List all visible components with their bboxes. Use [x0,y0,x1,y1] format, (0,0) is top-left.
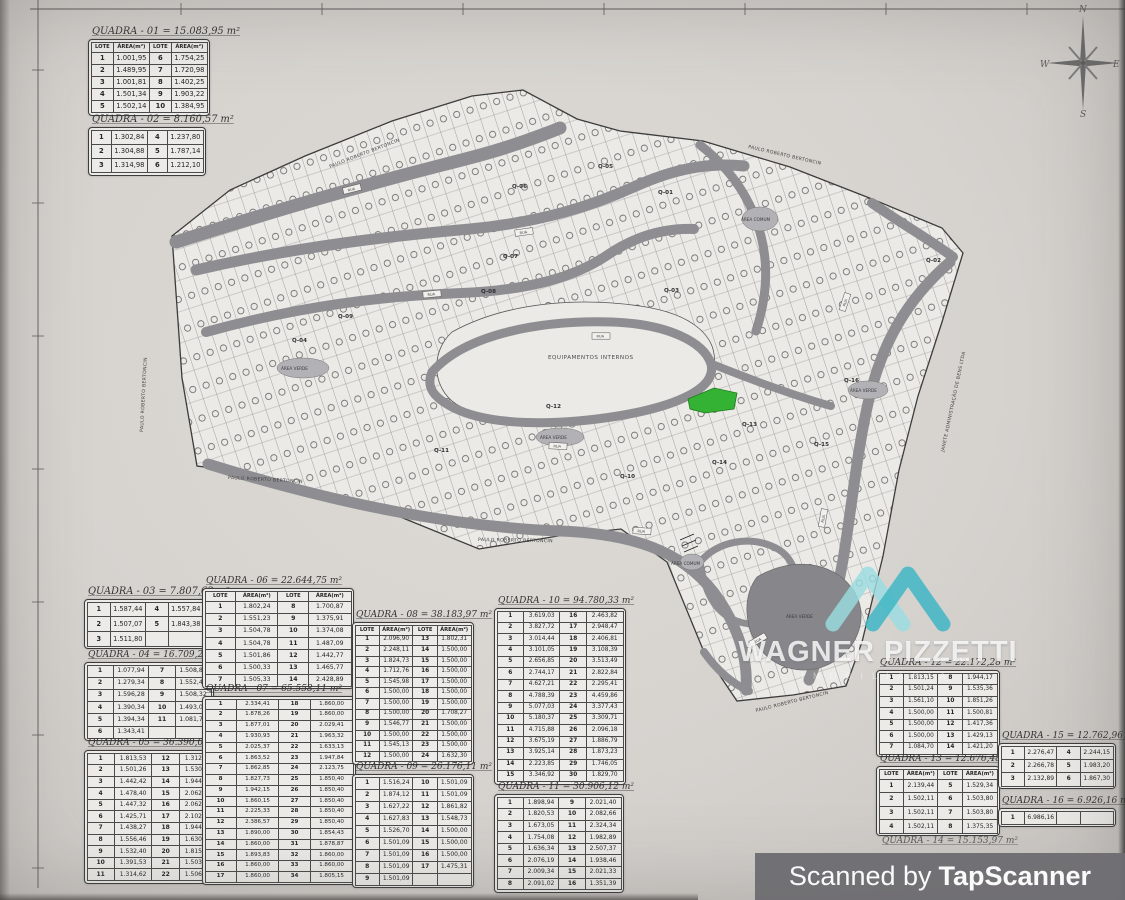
lote-cell: 15 [413,656,437,667]
lote-cell: 19 [413,698,437,709]
lote-cell: 8 [205,774,236,785]
lote-cell: 1 [87,665,113,677]
quadra-block-label: Q-03 [664,288,679,294]
lote-cell: 27 [279,796,310,807]
lote-cell: 15 [205,850,236,861]
lote-cell: 17 [413,677,437,688]
lote-cell: 21 [279,731,310,742]
table-row: 71.438,27181.944,24 [87,823,217,835]
table-row: 41.712,76161.500,00 [355,667,471,678]
area-cell: 1.391,53 [114,857,152,869]
area-cell: 1.851,26 [963,696,997,708]
table-row: 41.478,40152.062,45 [87,788,217,800]
area-cell: 1.860,00 [310,861,353,872]
area-cell: 1.084,70 [904,742,938,754]
quadra-14-title: QUADRA - 14 = 15.153,97 m² [882,836,1002,846]
table-row: 62.744,17212.822,84 [497,668,623,679]
table-row: 91.501,09 [355,873,471,885]
table-row: 12.139,4451.529,34 [879,779,997,793]
table-row: 12.276,4742.244,15 [1001,746,1113,759]
lote-cell: 2 [879,793,904,807]
area-cell: 1.802,31 [437,635,471,646]
area-cell: 1.854,43 [310,828,353,839]
lote-cell: 16 [205,861,236,872]
quadra-07-table: 12.334,41181.860,0021.878,26191.860,0031… [202,696,356,885]
lote-cell: 29 [279,818,310,829]
lote-cell: 23 [279,753,310,764]
lote-cell: 3 [87,776,114,788]
area-cell: 1.500,00 [437,677,471,688]
quadra-09-title: QUADRA - 09 = 26.176,11 m² [356,762,474,772]
lote-cell: 4 [205,731,236,742]
table-row: 61.425,71172.102,00 [87,811,217,823]
lote-cell: 10 [497,714,523,725]
table-row: 105.180,37253.309,71 [497,714,623,725]
lote-cell: 11 [205,807,236,818]
table-row: 21.489,9571.720,98 [91,64,207,76]
column-header: ÁREA(m²) [236,591,278,601]
area-cell: 2.082,66 [585,809,621,821]
area-cell: 2.276,47 [1025,746,1057,759]
area-cell: 2.406,81 [586,634,623,645]
lote-cell: 4 [145,602,169,617]
area-cell: 1.500,00 [437,656,471,667]
area-cell: 1.447,32 [114,799,152,811]
lote-cell: 2 [205,613,236,625]
table-row: 61.500,33131.465,77 [205,662,351,674]
area-cell: 1.501,09 [437,777,471,789]
table-row: 81.827,73251.850,40 [205,774,353,785]
table-row: 72.009,34152.021,33 [497,867,621,879]
area-cell: 1.824,73 [379,656,413,667]
area-cell: 3.675,19 [523,736,560,747]
lote-cell: 28 [560,748,586,759]
area-cell: 1.501,09 [379,849,413,861]
lote-cell: 4 [87,702,113,714]
area-cell: 1.500,00 [379,709,413,720]
lote-cell: 8 [497,691,523,702]
area-cell: 1.982,89 [585,832,621,844]
lote-cell: 8 [497,878,523,890]
quadra-10-table: 13.619,03162.463,8223.827,72172.948,4733… [494,608,626,785]
table-row: 101.391,53211.503,18 [87,857,217,869]
area-cell: 1.500,00 [437,825,471,837]
lote-cell: 7 [205,764,236,775]
column-header: ÁREA(m²) [963,769,997,779]
quadra-block-label: Q-04 [292,338,307,344]
lote-cell: 2 [87,617,111,632]
table-row: 61.500,00181.500,00 [355,688,471,699]
lote-cell: 6 [938,793,963,807]
lote-cell: 3 [497,634,523,645]
area-cell: 1.526,70 [379,825,413,837]
lote-cell: 20 [279,721,310,732]
area-cell: 2.744,17 [523,668,560,679]
table-row: 51.394,34111.081,75 [87,714,211,726]
table-row: 41.500,00111.500,81 [879,708,997,720]
table-row: 11.802,2481.700,87 [205,601,351,613]
table-row: 31.877,01202.029,41 [205,721,353,732]
table-row: 11.587,4441.557,84 [87,602,203,617]
area-cell: 1.500,00 [379,698,413,709]
area-cell: 1.478,40 [114,788,152,800]
area-cell: 1.627,83 [379,813,413,825]
area-cell: 1.850,40 [310,796,353,807]
lote-cell: 4 [355,667,379,678]
table-row: 11.001,9561.754,25 [91,52,207,64]
lote-cell: 8 [87,834,114,846]
lote-cell: 1 [1001,811,1025,824]
table-row: 31.511,80 [87,632,203,647]
area-cell: 4.788,39 [523,691,560,702]
area-cell: 1.633,13 [310,742,353,753]
table-row: 11.516,24101.501,09 [355,777,471,789]
lote-cell: 6 [87,726,113,738]
lote-cell [413,873,437,885]
area-cell: 2.021,40 [585,797,621,809]
area-cell: 1.511,80 [111,632,145,647]
area-cell: 1.860,00 [236,872,279,883]
lote-cell: 30 [560,770,586,781]
lote-cell: 11 [149,714,175,726]
area-cell: 1.820,53 [523,809,559,821]
lote-cell: 3 [879,806,904,820]
table-row: 12.334,41181.860,00 [205,699,353,710]
table-row: 31.442,42141.944,02 [87,776,217,788]
area-cell: 1.212,10 [168,158,203,172]
lote-cell: 11 [559,820,585,832]
quadra-04-block: QUADRA - 04 = 16.709,25 m²11.077,9471.50… [84,650,214,741]
area-cell: 1.501,09 [379,873,413,885]
table-row: 23.827,72172.948,47 [497,622,623,633]
lote-cell: 3 [205,625,236,637]
area-cell: 2.009,34 [523,867,559,879]
lote-cell: 1 [355,777,379,789]
quadra-block-label: Q-15 [814,442,829,448]
area-cell: 1.829,70 [586,770,623,781]
lote-cell: 1 [205,601,236,613]
area-label: ÁREA COMUM [671,561,701,566]
table-row: 31.001,8181.402,25 [91,76,207,88]
area-cell: 1.860,00 [236,861,279,872]
area-cell: 2.132,89 [1025,773,1057,786]
area-label: ÁREA VERDE [850,388,877,393]
area-cell: 1.500,00 [437,837,471,849]
quadra-13-title: QUADRA - 13 = 12.676,48 m² [880,754,1000,764]
quadra-13-table: LOTEÁREA(m²)LOTEÁREA(m²)12.139,4451.529,… [876,766,1000,836]
lote-cell: 9 [149,89,172,101]
lote-cell: 1 [1001,746,1025,759]
quadra-block-label: Q-06 [512,184,527,190]
table-row: 81.500,00201.708,27 [355,709,471,720]
table-row: 131.890,00301.854,43 [205,828,353,839]
lote-cell: 6 [205,753,236,764]
compass-west-label: W [1040,60,1050,70]
lote-cell: 4 [91,89,114,101]
area-cell: 2.223,85 [523,759,560,770]
lote-cell: 12 [152,753,179,765]
svg-text:RUA: RUA [637,529,645,534]
quadra-15-table: 12.276,4742.244,1522.266,7851.983,2032.1… [998,743,1116,789]
area-cell: 3.101,05 [523,645,560,656]
area-cell: 1.394,34 [113,714,149,726]
area-cell: 1.500,00 [437,849,471,861]
area-cell: 1.596,28 [113,689,149,701]
area-cell: 1.942,15 [236,785,279,796]
table-row: 171.860,00341.805,15 [205,872,353,883]
quadra-16-block: QUADRA - 16 = 6.926,16 m²16.986,16 [998,796,1116,827]
table-row: 112.225,33281.850,40 [205,807,353,818]
area-cell: 1.425,71 [114,811,152,823]
table-header-row: LOTEÁREA(m²)LOTEÁREA(m²) [205,591,351,601]
area-cell: 1.500,33 [236,662,278,674]
area-cell: 1.279,34 [113,677,149,689]
area-cell: 1.314,62 [114,869,152,881]
lote-cell: 13 [278,662,309,674]
table-row: 71.862,85242.123,75 [205,764,353,775]
lote-cell: 8 [149,677,175,689]
area-cell: 1.500,00 [904,731,938,743]
area-cell: 3.377,43 [586,702,623,713]
column-header: LOTE [91,42,114,52]
table-row: 21.304,8851.787,14 [91,144,203,158]
lote-cell: 11 [278,638,309,650]
area-cell: 1.850,40 [310,774,353,785]
area-cell: 1.417,36 [963,719,997,731]
area-cell: 1.720,98 [172,64,207,76]
area-cell: 1.545,98 [379,677,413,688]
area-label: ÁREA VERDE [540,435,567,440]
lote-cell: 11 [87,869,114,881]
area-cell: 1.886,79 [586,736,623,747]
table-row: 114.715,88262.096,18 [497,725,623,736]
table-row: 61.343,41 [87,726,211,738]
lote-cell: 13 [205,828,236,839]
area-cell: 1.503,80 [963,806,997,820]
area-cell: 1.500,00 [437,698,471,709]
lote-cell: 4 [497,832,523,844]
column-header: ÁREA(m²) [379,625,413,635]
area-cell: 1.500,00 [437,646,471,657]
area-cell: 2.656,85 [523,657,560,668]
table-header-row: LOTEÁREA(m²)LOTEÁREA(m²) [91,42,207,52]
lote-cell: 10 [149,101,172,113]
lote-cell: 13 [152,765,179,777]
area-cell: 1.877,01 [236,721,279,732]
quadra-15-block: QUADRA - 15 = 12.762,96 m²12.276,4742.24… [998,731,1116,789]
area-cell: 2.021,33 [585,867,621,879]
quadra-01-table: LOTEÁREA(m²)LOTEÁREA(m²)11.001,9561.754,… [88,39,210,116]
area-cell: 1.500,00 [379,730,413,741]
lote-cell: 12 [497,736,523,747]
area-cell: 2.948,47 [586,622,623,633]
lote-cell: 10 [205,796,236,807]
lote-cell: 20 [152,846,179,858]
table-row: 31.824,73151.500,00 [355,656,471,667]
table-row: 41.390,34101.493,08 [87,702,211,714]
column-header: ÁREA(m²) [437,625,471,635]
table-row: 91.532,40201.815,44 [87,846,217,858]
area-cell: 4.627,21 [523,679,560,690]
area-cell [1081,811,1114,824]
area-cell: 1.754,08 [523,832,559,844]
lote-cell: 4 [87,788,114,800]
area-cell: 1.673,05 [523,820,559,832]
table-header-row: LOTEÁREA(m²)LOTEÁREA(m²) [879,769,997,779]
lote-cell: 17 [560,622,586,633]
area-cell: 1.500,00 [437,667,471,678]
area-cell: 1.878,26 [236,710,279,721]
table-row: 133.925,14281.873,23 [497,748,623,759]
table-row: 141.860,00311.878,87 [205,839,353,850]
lote-cell: 6 [87,811,114,823]
area-label: ÁREA COMUM [741,217,771,222]
table-row: 52.656,85203.513,49 [497,657,623,668]
lote-cell: 5 [205,742,236,753]
area-cell: 1.442,42 [114,776,152,788]
quadra-block-label: Q-05 [598,164,613,170]
quadra-08-table: LOTEÁREA(m²)LOTEÁREA(m²)12.096,90131.802… [352,622,474,765]
lote-cell: 9 [938,685,963,697]
lote-cell: 3 [87,632,111,647]
area-cell: 1.001,81 [114,76,149,88]
area-cell: 1.700,87 [309,601,351,613]
area-cell: 2.822,84 [586,668,623,679]
compass-north-label: N [1078,5,1088,15]
table-row: 31.504,78101.374,08 [205,625,351,637]
table-row: 22.248,11141.500,00 [355,646,471,657]
lote-cell: 7 [355,698,379,709]
lote-cell: 2 [497,622,523,633]
area-cell: 1.546,77 [379,720,413,731]
lote-cell: 11 [938,708,963,720]
lote-cell: 7 [497,867,523,879]
table-row: 51.501,86121.442,77 [205,650,351,662]
lote-cell: 2 [497,809,523,821]
compass-south-label: S [1080,110,1086,120]
table-row: 33.014,44182.406,81 [497,634,623,645]
lote-cell: 5 [355,825,379,837]
area-cell: 5.077,03 [523,702,560,713]
table-row: 31.596,2891.508,32 [87,689,211,701]
area-cell: 1.077,94 [113,665,149,677]
area-cell: 1.860,00 [236,839,279,850]
lote-cell: 3 [91,158,112,172]
area-cell: 1.402,25 [172,76,207,88]
quadra-04-table: 11.077,9471.508,8421.279,3481.552,4131.5… [84,662,214,741]
area-cell: 1.802,24 [236,601,278,613]
area-cell: 1.551,23 [236,613,278,625]
lote-cell: 33 [279,861,310,872]
lote-cell: 3 [355,656,379,667]
quadra-12-title: QUADRA - 12 = 22.172,28 m² [880,658,1000,668]
compass-east-label: E [1112,60,1120,70]
quadra-block-label: Q-07 [503,254,518,260]
table-row: 71.500,00191.500,00 [355,698,471,709]
area-cell: 1.632,30 [437,751,471,762]
lote-cell: 13 [938,731,963,743]
lote-cell: 8 [938,673,963,685]
quadra-03-block: QUADRA - 03 = 7.807,63 m²11.587,4441.557… [84,586,206,649]
table-row: 91.546,77211.500,00 [355,720,471,731]
table-row: 21.279,3481.552,41 [87,677,211,689]
table-row: 91.942,15261.850,40 [205,785,353,796]
lote-cell: 6 [497,855,523,867]
area-cell: 1.343,41 [113,726,149,738]
quadra-03-table: 11.587,4441.557,8421.507,0751.843,3831.5… [84,599,206,649]
quadra-08-block: QUADRA - 08 = 38.183,97 m²LOTEÁREA(m²)LO… [352,610,474,765]
area-cell: 1.529,34 [963,779,997,793]
compass-rose-icon: N S W E [1040,5,1120,120]
scanned-by-bar: Scanned by TapScanner [755,853,1125,900]
lote-cell: 12 [413,801,437,813]
column-header: ÁREA(m²) [904,769,938,779]
lote-cell: 23 [560,691,586,702]
lote-cell: 2 [87,765,114,777]
lote-cell: 2 [1001,759,1025,772]
area-cell: 1.465,77 [309,662,351,674]
area-cell: 2.076,19 [523,855,559,867]
lote-cell: 14 [413,646,437,657]
area-cell: 2.463,82 [586,611,623,622]
table-row: 32.132,8961.867,30 [1001,773,1113,786]
quadra-block-label: Q-09 [338,314,353,320]
road-name-box: RUA [592,333,610,339]
lote-cell: 30 [279,828,310,839]
area-cell: 1.501,34 [114,89,149,101]
scanned-sheet: EQUIPAMENTOS INTERNOS PAULO ROBERTO BERT… [0,0,1125,900]
lote-cell: 1 [205,699,236,710]
table-row: 11.302,8441.237,80 [91,130,203,144]
area-cell: 1.302,84 [112,130,147,144]
table-row: 22.266,7851.983,20 [1001,759,1113,772]
quadra-06-block: QUADRA - 06 = 22.644,75 m²LOTEÁREA(m²)LO… [202,576,354,689]
lote-cell: 5 [938,779,963,793]
area-cell: 1.860,00 [310,850,353,861]
area-cell: 1.712,76 [379,667,413,678]
lote-cell: 15 [559,867,585,879]
area-cell: 2.334,41 [236,699,279,710]
table-row: 82.091,02161.351,39 [497,878,621,890]
area-cell: 1.903,22 [172,89,207,101]
column-header: LOTE [879,769,904,779]
quadra-block-label: Q-01 [658,190,673,196]
table-row: 74.627,21222.295,41 [497,679,623,690]
lote-cell: 9 [355,720,379,731]
area-cell: 1.489,95 [114,64,149,76]
table-row: 21.501,26131.530,42 [87,765,217,777]
quadra-02-table: 11.302,8441.237,8021.304,8851.787,1431.3… [88,127,206,176]
area-cell: 1.516,24 [379,777,413,789]
quadra-block-label: Q-10 [620,474,635,480]
lote-cell: 2 [87,677,113,689]
area-cell: 1.860,15 [236,796,279,807]
area-cell: 2.029,41 [310,721,353,732]
table-row: 52.025,37221.633,13 [205,742,353,753]
area-cell: 1.754,25 [172,52,207,64]
lote-cell: 3 [87,689,113,701]
road-name-box: RUA [549,442,567,449]
quadra-07-title: QUADRA - 07 = 65.558,11 m² [206,684,356,694]
area-cell: 1.863,52 [236,753,279,764]
lote-cell: 5 [91,101,114,113]
area-cell: 3.346,92 [523,770,560,781]
table-row: 21.874,12111.501,09 [355,789,471,801]
area-cell: 1.500,81 [963,708,997,720]
table-row: 43.101,05193.108,39 [497,645,623,656]
lote-cell: 9 [87,846,114,858]
area-cell: 2.244,15 [1081,746,1114,759]
